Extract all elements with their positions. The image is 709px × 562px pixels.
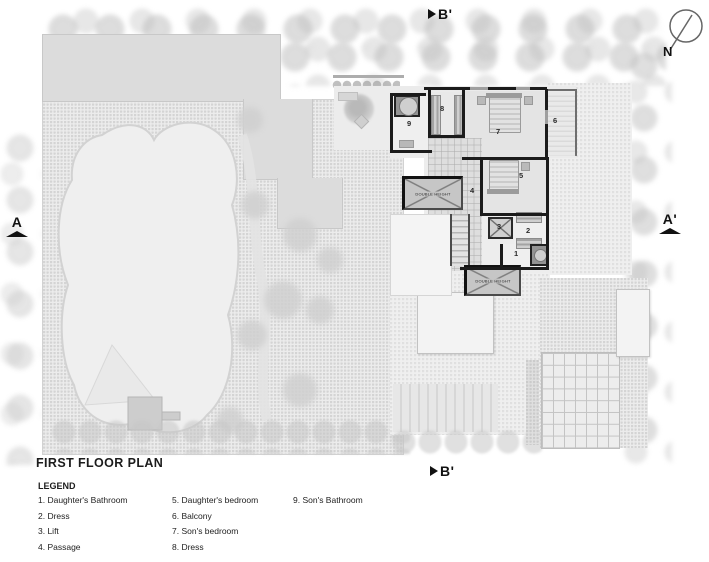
legend-column-2: 5. Daughter's bedroom 6. Balcony 7. Son'…: [172, 493, 293, 555]
roof-slab-right: [616, 289, 650, 357]
section-marker-a-right: A': [659, 211, 681, 234]
wall-right-lower: [546, 157, 549, 270]
entry-fence: [333, 75, 404, 78]
room-number-9: 9: [407, 119, 411, 128]
wall-7-5: [462, 157, 548, 160]
wall-room9-bottom: [390, 150, 432, 153]
roof-slab-topleft: [42, 34, 281, 102]
section-marker-label: B': [438, 6, 452, 22]
legend-item: 4. Passage: [38, 540, 172, 556]
garden-trail: [242, 135, 267, 420]
sidetable-son-right: [524, 96, 533, 105]
room-number-8: 8: [440, 104, 444, 113]
north-arrow-icon: [670, 15, 692, 50]
deck-steps: [393, 384, 498, 432]
bed-son: [489, 97, 521, 133]
basin-room9: [399, 97, 418, 116]
lawn-shape: [59, 123, 239, 433]
section-marker-label: A': [663, 211, 677, 227]
floor-plan-title: FIRST FLOOR PLAN: [36, 456, 163, 470]
window-room7-right: [516, 87, 530, 90]
wall-room5-bottom: [480, 213, 548, 216]
compass-circle-icon: [670, 10, 702, 42]
room-number-4: 4: [470, 186, 474, 195]
double-height-void-1: DOUBLE HEIGHT: [402, 176, 463, 210]
room-number-6: 6: [553, 116, 557, 125]
terrace-white-entry: [390, 214, 452, 296]
legend-heading: LEGEND: [38, 481, 363, 491]
double-height-label-2: DOUBLE HEIGHT: [474, 279, 511, 284]
section-arrow-icon: [6, 231, 28, 237]
legend-item: 7. Son's bedroom: [172, 524, 293, 540]
garden-svg: [42, 100, 402, 452]
terrace-roof: [417, 292, 494, 354]
wall-room1-bottom: [500, 267, 548, 270]
pergola-grid: [541, 352, 620, 449]
legend-item: 9. Son's Bathroom: [293, 493, 363, 509]
wall-passage-bottom: [460, 267, 502, 270]
sidetable-son-left: [477, 96, 486, 105]
wall-8-7: [462, 87, 465, 138]
room-number-1: 1: [514, 249, 518, 258]
section-arrow-icon: [659, 228, 681, 234]
section-arrow-icon: [430, 466, 438, 476]
planter-strip: [526, 360, 539, 445]
legend-column-1: 1. Daughter's Bathroom 2. Dress 3. Lift …: [38, 493, 172, 555]
room-number-2: 2: [526, 226, 530, 235]
section-marker-b-bottom: B': [430, 463, 454, 479]
section-marker-a-left: A: [6, 214, 28, 237]
north-label: N: [663, 44, 672, 59]
tree-border-top-inner: [278, 36, 666, 86]
window-room7-left: [470, 87, 488, 90]
legend-item: 8. Dress: [172, 540, 293, 556]
room-number-7: 7: [496, 127, 500, 136]
wall-7-6: [545, 89, 548, 159]
sidetable-daughter: [521, 162, 530, 171]
wardrobe-room8-left: [431, 95, 441, 135]
legend-item: 6. Balcony: [172, 509, 293, 525]
legend-item: 2. Dress: [38, 509, 172, 525]
section-marker-label: A: [12, 214, 23, 230]
legend-item: 3. Lift: [38, 524, 172, 540]
legend-columns: 1. Daughter's Bathroom 2. Dress 3. Lift …: [38, 493, 363, 555]
section-arrow-icon: [428, 9, 436, 19]
section-marker-label: B': [440, 463, 454, 479]
room-number-3: 3: [497, 222, 501, 231]
north-compass: N: [656, 2, 708, 60]
room-6-balcony: [547, 92, 577, 156]
legend-item: 1. Daughter's Bathroom: [38, 493, 172, 509]
bed-daughter-headboard: [487, 189, 519, 194]
sink-room9: [399, 140, 414, 148]
courtyard-bench: [338, 92, 358, 101]
wall-room9-left: [390, 93, 393, 153]
room-number-5: 5: [519, 171, 523, 180]
garden-hedge-bottom: [50, 418, 410, 454]
wall-room5-left: [480, 160, 483, 216]
section-marker-b-top: B': [428, 6, 452, 22]
legend-item: 5. Daughter's bedroom: [172, 493, 293, 509]
wall-balcony-right: [575, 89, 577, 155]
wall-room9-top: [390, 93, 426, 96]
hedge-below-deck: [390, 428, 542, 456]
legend-column-3: 9. Son's Bathroom: [293, 493, 363, 555]
staircase: [450, 214, 470, 266]
bed-daughter: [489, 160, 519, 192]
double-height-label-1: DOUBLE HEIGHT: [414, 191, 451, 196]
tree-border-left: [0, 130, 42, 465]
floor-plan-canvas: DOUBLE HEIGHT DOUBLE HEIGHT 1 2 3 4 5 6 …: [0, 0, 709, 562]
wall-balcony-top: [547, 89, 577, 91]
legend: LEGEND 1. Daughter's Bathroom 2. Dress 3…: [38, 481, 363, 555]
door-room7-balcony: [545, 110, 548, 124]
wall-9-8: [428, 90, 431, 138]
wall-8-passage: [428, 135, 465, 138]
